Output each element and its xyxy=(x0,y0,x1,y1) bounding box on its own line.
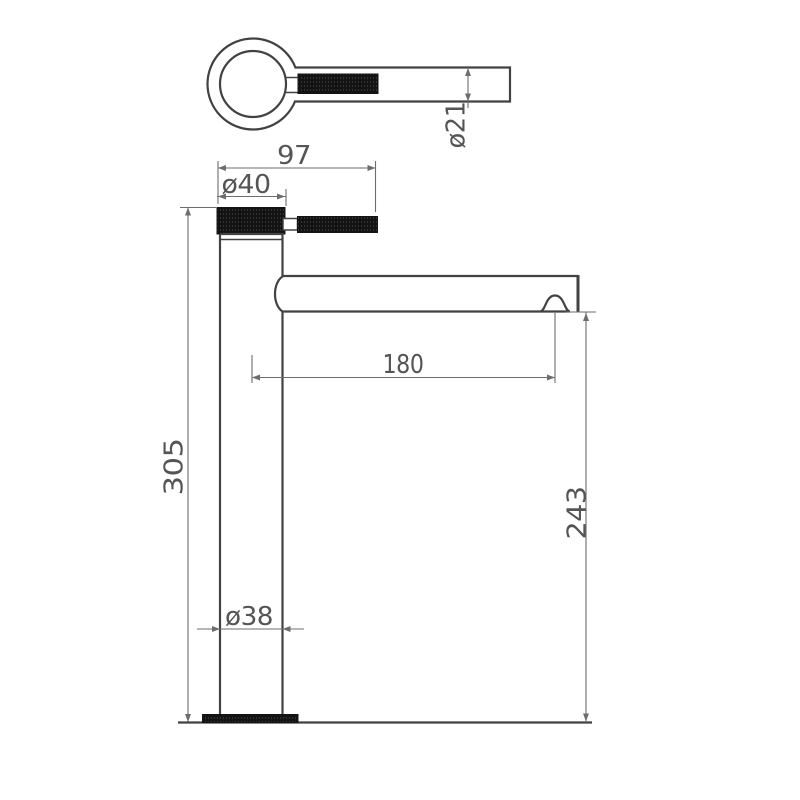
arrow-down-icon xyxy=(185,714,191,722)
top-view: ø21 xyxy=(208,39,511,149)
dim-label-top-tube-diameter: ø21 xyxy=(442,102,472,149)
front-view: 97 ø40 xyxy=(160,141,596,723)
base-plate xyxy=(203,715,299,723)
dim-label-body-diameter: ø38 xyxy=(225,602,273,632)
ring-inner-circle xyxy=(220,51,286,117)
dim-label-spout-height: 243 xyxy=(563,487,593,540)
handle-knurl-front xyxy=(298,217,378,233)
spout-left-curve xyxy=(275,277,283,312)
arrow-right-icon xyxy=(368,165,376,171)
arrow-down-icon xyxy=(583,714,589,722)
body-column xyxy=(220,234,283,715)
dimension-total-height: 305 xyxy=(160,208,216,723)
arrow-left-icon xyxy=(283,626,291,632)
drawing-canvas: ø21 97 ø40 xyxy=(0,0,800,800)
technical-drawing: ø21 97 ø40 xyxy=(0,0,800,800)
spout xyxy=(275,275,578,312)
arrow-left-icon xyxy=(252,375,260,381)
dim-label-spout-reach: 180 xyxy=(383,350,424,380)
dimension-cap-diameter: ø40 xyxy=(217,170,286,206)
dim-label-cap-diameter: ø40 xyxy=(222,170,271,200)
arrow-up-icon xyxy=(583,313,589,321)
cap-knurl-front xyxy=(217,208,285,235)
dimension-spout-height: 243 xyxy=(563,312,596,722)
dim-label-total-height: 305 xyxy=(160,439,190,496)
dim-label-handle-length: 97 xyxy=(277,141,311,171)
dimension-body-diameter: ø38 xyxy=(197,602,304,632)
arrow-right-icon xyxy=(277,194,285,200)
arrow-right-icon xyxy=(547,375,555,381)
handle-connector-front xyxy=(283,219,298,231)
aerator-dome xyxy=(540,296,570,312)
arrow-right-icon xyxy=(212,626,220,632)
dimension-spout-reach: 180 xyxy=(252,313,555,383)
arrow-up-icon xyxy=(185,208,191,216)
handle-knurl-top xyxy=(298,74,378,94)
